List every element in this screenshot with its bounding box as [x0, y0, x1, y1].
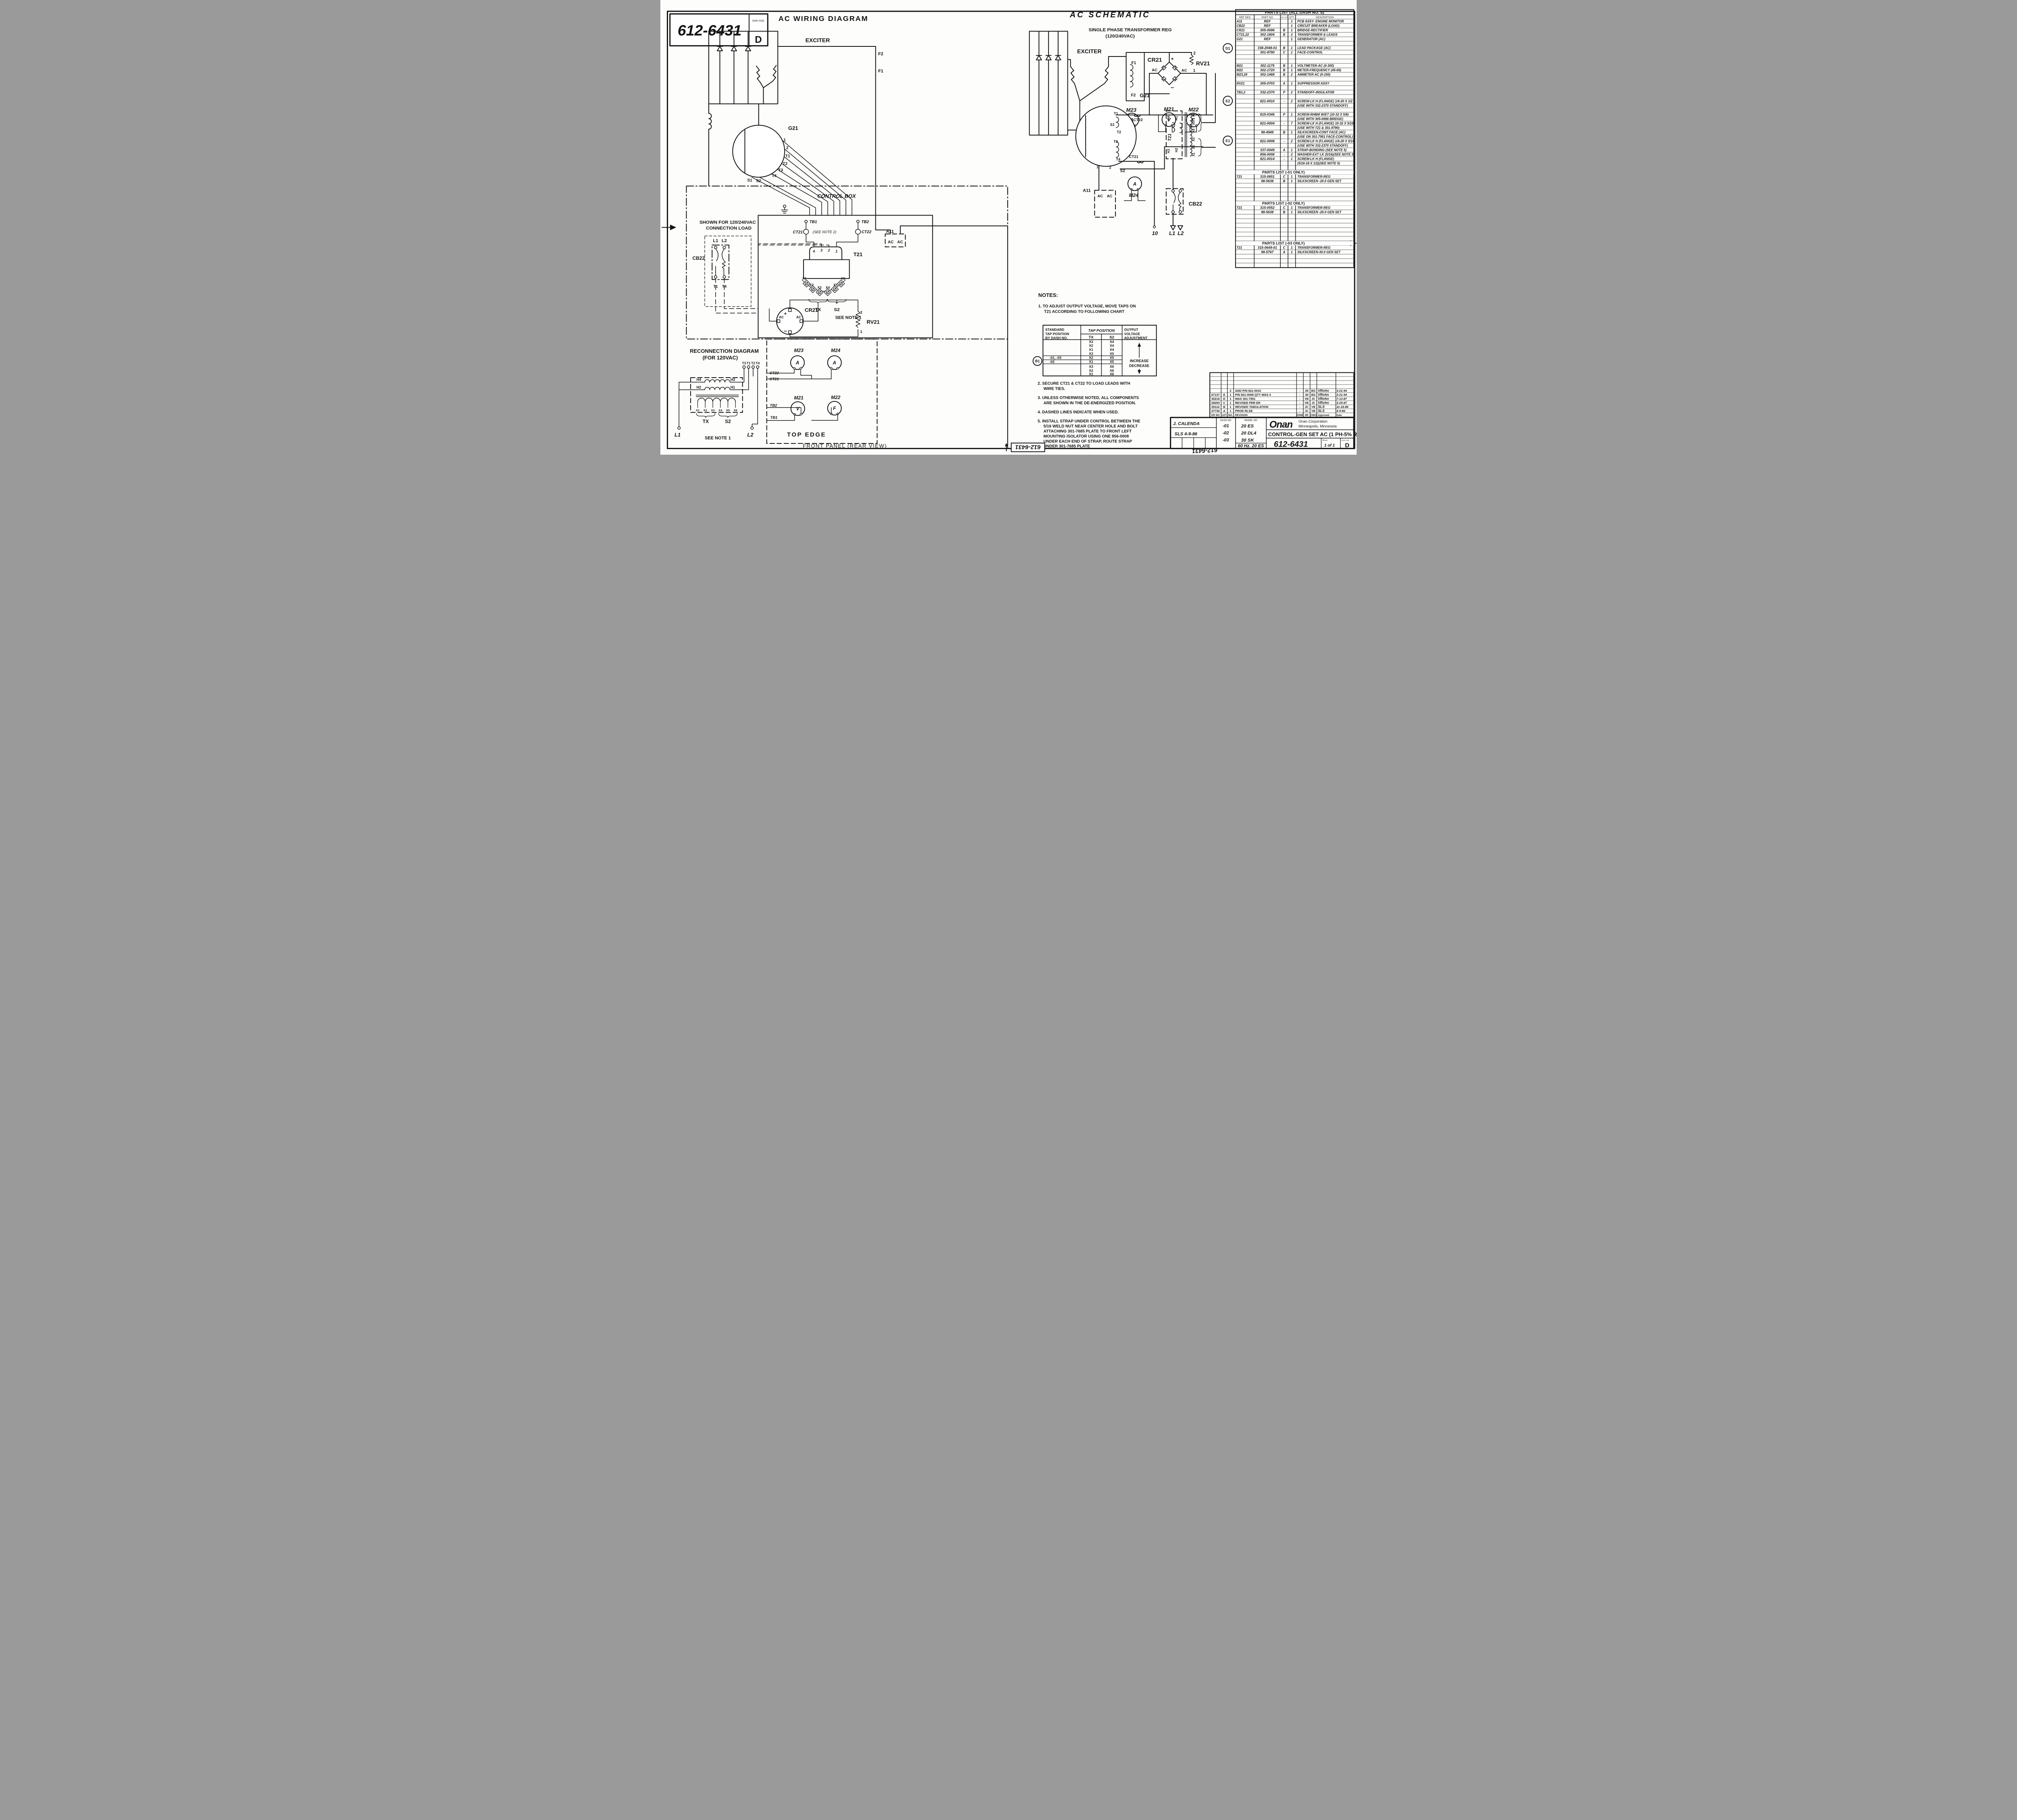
svg-text:B: B [1223, 405, 1226, 409]
svg-text:STRAP-BONDING (SEE NOTE 5): STRAP-BONDING (SEE NOTE 5) [1297, 148, 1347, 152]
s2-brace-label: S2 [834, 307, 839, 312]
sch-m24-letter: A [1133, 181, 1137, 187]
zone-e2: E2 [1223, 96, 1232, 105]
x5-label: X5 [833, 283, 838, 287]
svg-text:2: 2 [1230, 389, 1231, 393]
zone-e1: E1 [1223, 136, 1232, 145]
model-02: 20 DL4 [1241, 431, 1257, 436]
a11-ac1: AC [888, 240, 894, 244]
sch-x3: X3 [1192, 137, 1196, 141]
svg-text:B: B [1283, 29, 1285, 32]
svg-text:-: - [1284, 153, 1285, 157]
svg-text:BRIDGE-RECTIFIER: BRIDGE-RECTIFIER [1297, 29, 1328, 32]
model-no-header: MODEL NO [1244, 420, 1257, 422]
chart-r6-s2: X6 [1110, 365, 1114, 369]
svg-text:DR: DR [1305, 414, 1309, 417]
svg-text:302-1175: 302-1175 [1260, 64, 1275, 68]
svg-text:821-0010: 821-0010 [1260, 99, 1275, 103]
svg-text:27736: 27736 [1211, 409, 1220, 413]
svg-text:B: B [1283, 46, 1285, 50]
svg-text:C: C [1283, 246, 1285, 249]
svg-text:SILKSCREEN -20.0 GEN SET: SILKSCREEN -20.0 GEN SET [1297, 210, 1342, 214]
svg-text:1: 1 [1230, 405, 1231, 409]
a11-label: A11 [886, 229, 894, 234]
wiring-title: AC WIRING DIAGRAM [779, 15, 869, 23]
control-box-label: CONTROL BOX [817, 193, 856, 199]
svg-text:E: E [1223, 393, 1225, 397]
svg-text:305-0703: 305-0703 [1260, 81, 1275, 86]
svg-text:-: - [1284, 122, 1285, 125]
chart-r5-tx: X1 [1089, 360, 1093, 364]
ct21-note: (SEE NOTE 2) [812, 230, 836, 234]
svg-text:P: P [1283, 91, 1286, 94]
svg-text:30218: 30218 [1211, 397, 1220, 401]
svg-text:1: 1 [1291, 24, 1293, 28]
svg-text:2: 2 [1290, 91, 1293, 94]
recon-x1: X1 [696, 409, 699, 412]
svg-text:TRANSFORMER-REG: TRANSFORMER-REG [1297, 246, 1330, 249]
svg-text:98-5638: 98-5638 [1261, 210, 1274, 214]
svg-text:B: B [1283, 210, 1285, 214]
svg-text:A: A [1282, 250, 1285, 254]
svg-text:1: 1 [1291, 250, 1293, 254]
svg-text:REVISION: REVISION [1235, 414, 1248, 417]
schematic-title: AC SCHEMATIC [1069, 10, 1150, 19]
m21-letter: V [796, 406, 800, 412]
svg-text:B: B [1283, 179, 1285, 183]
sch-h4: H4 [1167, 115, 1171, 120]
svg-text:98-5638: 98-5638 [1261, 179, 1274, 183]
stamp-right: 612-6431 [1192, 446, 1218, 454]
svg-text:FACE-CONTROL: FACE-CONTROL [1297, 51, 1323, 54]
svg-text:M21: M21 [1236, 64, 1243, 68]
svg-text:3-25-87: 3-25-87 [1336, 401, 1347, 405]
recon-title2: (FOR 120VAC) [702, 355, 738, 361]
recon-h3: H3 [731, 378, 735, 382]
svg-text:G21: G21 [1236, 38, 1243, 41]
svg-text:REVISED PER ER: REVISED PER ER [1235, 401, 1261, 405]
svg-text:1: 1 [1291, 206, 1293, 209]
svg-text:VRohn: VRohn [1318, 389, 1329, 393]
wiring-lead-t4: T4 [772, 174, 777, 178]
svg-text:VOLTMETER-AC (0-300): VOLTMETER-AC (0-300) [1297, 64, 1334, 68]
svg-text:302-1804: 302-1804 [1260, 33, 1275, 37]
recon-t4: T4 [756, 361, 760, 365]
svg-text:REF: REF [1264, 37, 1271, 41]
rv21-label: RV21 [867, 319, 879, 325]
recon-x6: X6 [734, 409, 737, 412]
model-01: 20 ES [1241, 424, 1254, 429]
svg-text:TB1,2: TB1,2 [1236, 91, 1245, 94]
tb2-label: TB2 [861, 220, 869, 224]
svg-text:SILKSCREEN-30.0 GEN SET: SILKSCREEN-30.0 GEN SET [1297, 250, 1341, 254]
chart-r0-tx: X3 [1089, 340, 1093, 344]
note2-line1: 2. SECURE CT21 & CT22 TO LOAD LEADS WITH [1038, 382, 1130, 386]
recon-l2: L2 [747, 432, 754, 438]
note5-line2: 5/16 WELD NUT NEAR CENTER HOLE AND BOLT [1044, 424, 1138, 429]
sch-h3: H3 [1167, 149, 1171, 153]
dash-no-header: DASH NO [1220, 420, 1232, 422]
svg-text:305-0696: 305-0696 [1260, 28, 1275, 32]
svg-text:1: 1 [1230, 397, 1231, 401]
chart-r1-tx: X2 [1089, 344, 1093, 348]
onan-logo: Onan [1269, 419, 1293, 430]
parts-all-title: PARTS LIST (ALL DASH NO.'S) [1265, 10, 1324, 15]
svg-text:GENERATOR (AC): GENERATOR (AC) [1297, 38, 1326, 41]
sch-ct22: CT22 [1134, 118, 1143, 122]
title-block-dwg-no: 612-6431 [1274, 440, 1308, 449]
svg-text:A: A [1223, 409, 1226, 413]
svg-text:1: 1 [1291, 179, 1293, 183]
wiring-lead-t2: T2 [783, 162, 787, 166]
sch-t3: T3 [1114, 140, 1118, 144]
note3-line1: 3. UNLESS OTHERWISE NOTED, ALL COMPONENT… [1038, 396, 1139, 400]
ct21-label: CT21 [793, 230, 803, 235]
svg-text:SCREW-LK H (FLANGE): SCREW-LK H (FLANGE) [1297, 157, 1334, 161]
chart-r1-s2: X4 [1110, 344, 1114, 348]
zone-b1-label: B1 [1035, 359, 1040, 363]
chart-h1c: BY DASH NO. [1045, 336, 1067, 340]
svg-text:Date: Date [1336, 414, 1342, 417]
svg-text:(5/16-18 X 1/2)(SEE NOTE 5): (5/16-18 X 1/2)(SEE NOTE 5) [1297, 162, 1340, 165]
cr21-ac-right: AC [796, 315, 801, 319]
svg-text:T21: T21 [1236, 246, 1242, 249]
panel-tb1: TB1 [770, 416, 777, 420]
svg-text:7: 7 [1291, 122, 1293, 125]
svg-text:SILKSCREEN -20.0 GEN SET: SILKSCREEN -20.0 GEN SET [1297, 179, 1342, 183]
svg-text:E2: E2 [1226, 99, 1230, 103]
chart-r0-s2: X4 [1110, 340, 1114, 344]
sch-g21: G21 [1140, 92, 1150, 98]
svg-text:CHKD: CHKD [1310, 414, 1317, 417]
recon-t1: T1 [747, 361, 751, 365]
svg-text:1: 1 [1291, 148, 1293, 152]
svg-text:LEAD PACKAGE (AC): LEAD PACKAGE (AC) [1297, 46, 1331, 50]
svg-text:JC: JC [1311, 398, 1315, 401]
schematic-f1: F1 [1132, 61, 1136, 65]
svg-text:7-13-87: 7-13-87 [1336, 397, 1347, 401]
chart-h1b: TAP POSITION [1045, 332, 1069, 336]
sch-s2: S2 [1120, 169, 1125, 173]
wiring-exciter-label: EXCITER [806, 37, 830, 43]
sch-l2: L2 [1178, 230, 1184, 236]
cr21-ac-left: AC [779, 315, 784, 319]
svg-text:(USE WITH T21 & 301-9790): (USE WITH T21 & 301-9790) [1297, 126, 1340, 130]
svg-text:2: 2 [1290, 73, 1293, 77]
svg-text:(USE WITH 305-0696 BRIDGE): (USE WITH 305-0696 BRIDGE) [1297, 117, 1343, 121]
svg-text:CIRCUIT BREAKER (LOAD): CIRCUIT BREAKER (LOAD) [1297, 24, 1340, 28]
note2-line2: WIRE TIES. [1044, 387, 1065, 391]
sch-x2: X2 [1192, 145, 1196, 149]
svg-text:1: 1 [1291, 69, 1293, 72]
dwg-size-label: DWG SIZE [752, 20, 764, 23]
svg-text:JC: JC [1311, 402, 1315, 405]
zone-d1: D1 [1223, 44, 1232, 53]
x3-label: X3 [817, 285, 822, 289]
recon-h4: H4 [696, 378, 701, 382]
sch-x4: X4 [1192, 128, 1196, 132]
svg-text:1: 1 [1291, 175, 1293, 178]
svg-text:821-0004: 821-0004 [1260, 121, 1275, 125]
cr21-minus: − [784, 328, 787, 334]
cb22-l2: L2 [722, 238, 727, 243]
svg-text:B: B [1283, 33, 1285, 37]
chart-h1a: STANDARD [1045, 328, 1064, 332]
note1-line1: 1. TO ADJUST OUTPUT VOLTAGE, MOVE TAPS O… [1038, 304, 1136, 309]
cb22-l1: L1 [713, 238, 718, 243]
svg-text:A11: A11 [1236, 20, 1242, 23]
svg-text:SILKSCREEN-CONT FACE (AC): SILKSCREEN-CONT FACE (AC) [1297, 131, 1346, 134]
rv21-1: 1 [860, 330, 862, 334]
recon-x2: X2 [704, 409, 707, 412]
recon-title1: RECONNECTION DIAGRAM [690, 348, 759, 354]
sch-a11-ac2: AC [1107, 194, 1113, 199]
m21-label: M21 [794, 395, 804, 401]
svg-text:TRANSFORMER-REG: TRANSFORMER-REG [1297, 206, 1330, 209]
parts-03-title: PARTS LIST (-03 ONLY) [1262, 241, 1305, 246]
svg-text:1: 1 [1291, 51, 1293, 54]
svg-text:NO.: NO. [1228, 414, 1233, 417]
svg-text:ER NO: ER NO [1211, 414, 1220, 417]
svg-text:1: 1 [1291, 20, 1293, 23]
rv21-2: 2 [860, 310, 862, 315]
parts-01-title: PARTS LIST (-01 ONLY) [1262, 170, 1305, 175]
sch-cr21-ac-left: AC [1152, 68, 1157, 72]
svg-text:D1: D1 [1226, 46, 1230, 50]
svg-text:Approved: Approved [1318, 414, 1329, 417]
sch-h2: H2 [1174, 148, 1178, 152]
parts-02-title: PARTS LIST (-02 ONLY) [1262, 201, 1305, 206]
schematic-exciter-label: EXCITER [1077, 48, 1102, 54]
cr21-label: CR21 [805, 307, 818, 313]
chart-h2: TAP POSITION [1088, 328, 1115, 333]
sch-n2: 2 [1109, 165, 1111, 169]
sch-h1: H1 [1174, 116, 1178, 120]
col-part-no: PART NO [1262, 16, 1273, 19]
svg-text:T21: T21 [1236, 175, 1242, 178]
svg-text:CB22: CB22 [1236, 24, 1245, 28]
svg-text:P/N 821-0008 QTY WAS 4: P/N 821-0008 QTY WAS 4 [1235, 393, 1272, 397]
svg-text:(USE ON 301-7951 FACE-CONTROL): (USE ON 301-7951 FACE-CONTROL) [1297, 135, 1353, 139]
svg-text:(USE WITH 332-2370 STANDOFF): (USE WITH 332-2370 STANDOFF) [1297, 144, 1348, 148]
svg-text:B: B [1283, 69, 1285, 72]
svg-text:STANDOFF-INSULATOR: STANDOFF-INSULATOR [1297, 91, 1334, 94]
wiring-lead-s2: S2 [756, 179, 761, 183]
svg-text:C: C [1283, 175, 1285, 178]
svg-text:REF: REF [1264, 24, 1271, 28]
svg-text:315-0651: 315-0651 [1260, 174, 1275, 178]
wiring-lead-1: 1 [783, 138, 786, 142]
top-edge: TOP EDGE [787, 431, 826, 438]
parts-lists: PARTS LIST (ALL DASH NO.'S) REF DES PART… [1223, 10, 1355, 268]
m23-letter: A [796, 360, 800, 366]
svg-text:TRANSFORMER & LEADS: TRANSFORMER & LEADS [1297, 33, 1338, 37]
svg-text:SCREW-LK H (FLANGE) 10-32 X 5/: SCREW-LK H (FLANGE) 10-32 X 5/16 [1297, 122, 1354, 125]
x1-label: X1 [802, 276, 807, 280]
svg-text:BG: BG [1311, 390, 1315, 393]
a11-ac2: AC [897, 240, 903, 244]
recon-t3: T3 [742, 361, 746, 365]
sch-rv21-2: 2 [1193, 51, 1196, 56]
company-line2: Minneapolis, Minnesota [1299, 424, 1336, 428]
svg-text:JN: JN [1305, 390, 1309, 393]
sch-a11-ac1: AC [1097, 194, 1103, 199]
sch-t2: T2 [1117, 130, 1121, 134]
svg-text:WASHER-EXT LK (5/16)(SEE NOTE: WASHER-EXT LK (5/16)(SEE NOTE 5) [1297, 153, 1355, 157]
checked-by: SLS 4-9-86 [1175, 432, 1198, 437]
svg-text:E1: E1 [1226, 139, 1230, 143]
recon-h1: H1 [731, 385, 735, 389]
revision-table: 2ADD P/N 821-0010-JNBGVRohn3-21-94 67137… [1210, 372, 1354, 417]
col-qty: QTY [1289, 17, 1294, 19]
chart-r4-tx: X2 [1089, 356, 1093, 360]
zone-b1: B1 [1033, 357, 1042, 366]
sch-n1: 1 [1096, 165, 1098, 169]
ct22-label: CT22 [862, 230, 872, 234]
chart-r4-s2: X5 [1110, 356, 1114, 360]
sch-cr21-minus: − [1171, 84, 1174, 91]
sch-cr21-plus: + [1171, 56, 1174, 62]
wiring-lead-s1: S1 [747, 178, 752, 183]
t21-tap2: 2 [827, 248, 830, 252]
svg-text:67137: 67137 [1211, 393, 1220, 397]
svg-text:-: - [1284, 100, 1285, 103]
chart-r8-s2: X6 [1110, 372, 1114, 376]
svg-text:4-9-86: 4-9-86 [1336, 409, 1345, 413]
chart-increase: INCREASE [1130, 359, 1148, 363]
chart-r3-tx: X3 [1089, 352, 1093, 356]
m22-letter: F [833, 405, 836, 411]
chart-decrease: DECREASE [1129, 364, 1149, 368]
sch-rv21-1: 1 [1193, 69, 1196, 73]
svg-text:VB: VB [1311, 410, 1315, 413]
svg-text:1: 1 [1230, 401, 1231, 405]
svg-text:VB: VB [1305, 398, 1309, 401]
t21-label: T21 [854, 251, 862, 257]
svg-text:1: 1 [1291, 157, 1293, 161]
drawing-title: CONTROL-GEN SET AC (1 PH-5% REG) [1268, 431, 1357, 437]
svg-text:C: C [1283, 51, 1285, 54]
svg-text:M22: M22 [1236, 69, 1243, 72]
drawing-number-box: 612-6431 DWG SIZE D [670, 14, 768, 46]
recon-l1: L1 [674, 432, 681, 438]
svg-text:T21: T21 [1236, 206, 1242, 209]
svg-text:VRohn: VRohn [1318, 401, 1329, 405]
svg-text:VRohn: VRohn [1318, 393, 1329, 397]
svg-text:VB: VB [1311, 406, 1315, 409]
sch-rv21-label: RV21 [1196, 60, 1210, 67]
chart-s2: S2 [1109, 335, 1114, 340]
svg-text:SLS: SLS [1318, 405, 1325, 409]
cb22-label: CB22 [692, 255, 705, 261]
svg-text:98-5767: 98-5767 [1261, 250, 1274, 254]
svg-text:1: 1 [1230, 409, 1231, 413]
sch-ct21: CT21 [1129, 155, 1139, 159]
recon-s2: S2 [725, 419, 731, 424]
svg-text:315-0552: 315-0552 [1260, 205, 1275, 209]
chart-r6-tx: X3 [1089, 365, 1093, 369]
note5-line3: ATTACHING 301-7685 PLATE TO FRONT LEFT [1044, 429, 1132, 434]
svg-text:1: 1 [1291, 82, 1293, 86]
m22-label: M22 [831, 395, 841, 400]
note5-line1: 5. INSTALL STRAP UNDER CONTROL BETWEEN T… [1038, 419, 1140, 424]
svg-text:301-9790: 301-9790 [1260, 50, 1275, 54]
svg-text:RV21: RV21 [1236, 82, 1245, 86]
sheet-label: Sheet [1322, 439, 1328, 442]
col-ref-des: REF DES [1239, 16, 1251, 19]
svg-text:VRohn: VRohn [1318, 397, 1329, 401]
svg-text:C: C [1283, 206, 1285, 209]
model-03: 30 SK [1241, 438, 1255, 443]
chart-r5-s2: X5 [1110, 360, 1114, 364]
svg-text:B: B [1283, 64, 1285, 68]
size-value: D [1345, 442, 1349, 449]
chart-tx: TX [1089, 335, 1094, 340]
m23-label: M23 [794, 348, 804, 353]
drawing-sheet: 612-6431 DWG SIZE D AC WIRING DIAGRAM EX… [660, 0, 1357, 455]
svg-text:PROD RLSE: PROD RLSE [1235, 409, 1253, 413]
m24-letter: A [832, 360, 836, 366]
svg-text:A: A [1282, 148, 1285, 152]
recon-x4: X4 [718, 409, 722, 412]
svg-text:338-2048-01: 338-2048-01 [1258, 46, 1277, 50]
dash-01: -01 [1223, 424, 1229, 428]
sch-out10: 10 [1152, 230, 1158, 236]
svg-text:C: C [1223, 401, 1226, 405]
svg-text:PCB ASSY- ENGINE MONITOR: PCB ASSY- ENGINE MONITOR [1297, 20, 1344, 23]
svg-text:98-4948: 98-4948 [1261, 130, 1274, 134]
drawing-number: 612-6431 [678, 22, 741, 39]
svg-text:M23,24: M23,24 [1236, 73, 1247, 77]
stamp-center: 612-6431 [1015, 444, 1041, 451]
sch-cr21-label: CR21 [1148, 56, 1162, 63]
svg-text:REF: REF [1264, 19, 1271, 23]
svg-text:CT21,22: CT21,22 [1236, 33, 1249, 37]
svg-text:WAS 301-7951: WAS 301-7951 [1235, 397, 1256, 401]
cr21-plus: + [784, 311, 787, 316]
col-description: DESCRIPTION [1316, 16, 1334, 19]
sch-x5: X5 [1192, 121, 1196, 125]
sch-a11: A11 [1083, 188, 1091, 193]
shown-for-line1: SHOWN FOR 120/240VAC [699, 220, 756, 225]
sch-s1: S1 [1110, 123, 1115, 127]
svg-text:SCREW-LK H (FLANGE) 1/4-20 X 5: SCREW-LK H (FLANGE) 1/4-20 X 5/16 [1297, 140, 1355, 143]
svg-text:11-18-86: 11-18-86 [1336, 405, 1349, 409]
svg-text:JC: JC [1305, 406, 1309, 409]
sch-cb22: CB22 [1189, 201, 1202, 207]
svg-text:29293: 29293 [1211, 401, 1220, 405]
svg-text:P: P [1283, 113, 1286, 117]
svg-text:337-0049: 337-0049 [1260, 148, 1275, 152]
recon-x3: X3 [711, 409, 714, 412]
svg-text:1: 1 [1291, 38, 1293, 41]
tb1-label: TB1 [809, 220, 817, 224]
dash-03: -03 [1223, 438, 1229, 443]
x4-label: X4 [826, 285, 830, 289]
svg-text:CR21: CR21 [1236, 29, 1245, 32]
dash-02: -02 [1223, 431, 1229, 436]
note5-line5: UNDER EACH END OF STRAP, ROUTE STRAP [1044, 439, 1132, 444]
size-label: DWG SIZE [1341, 439, 1349, 441]
sch-t4: T4 [1116, 157, 1121, 161]
svg-text:1: 1 [1230, 393, 1231, 397]
svg-text:ZONE: ZONE [1297, 414, 1303, 417]
shown-for-line2: CONNECTION LOAD [706, 226, 752, 231]
wiring-f2: F2 [878, 52, 883, 56]
svg-text:2: 2 [1290, 153, 1293, 157]
chart-h3a: OUTPUT [1124, 328, 1139, 332]
svg-text:D: D [1223, 397, 1226, 401]
